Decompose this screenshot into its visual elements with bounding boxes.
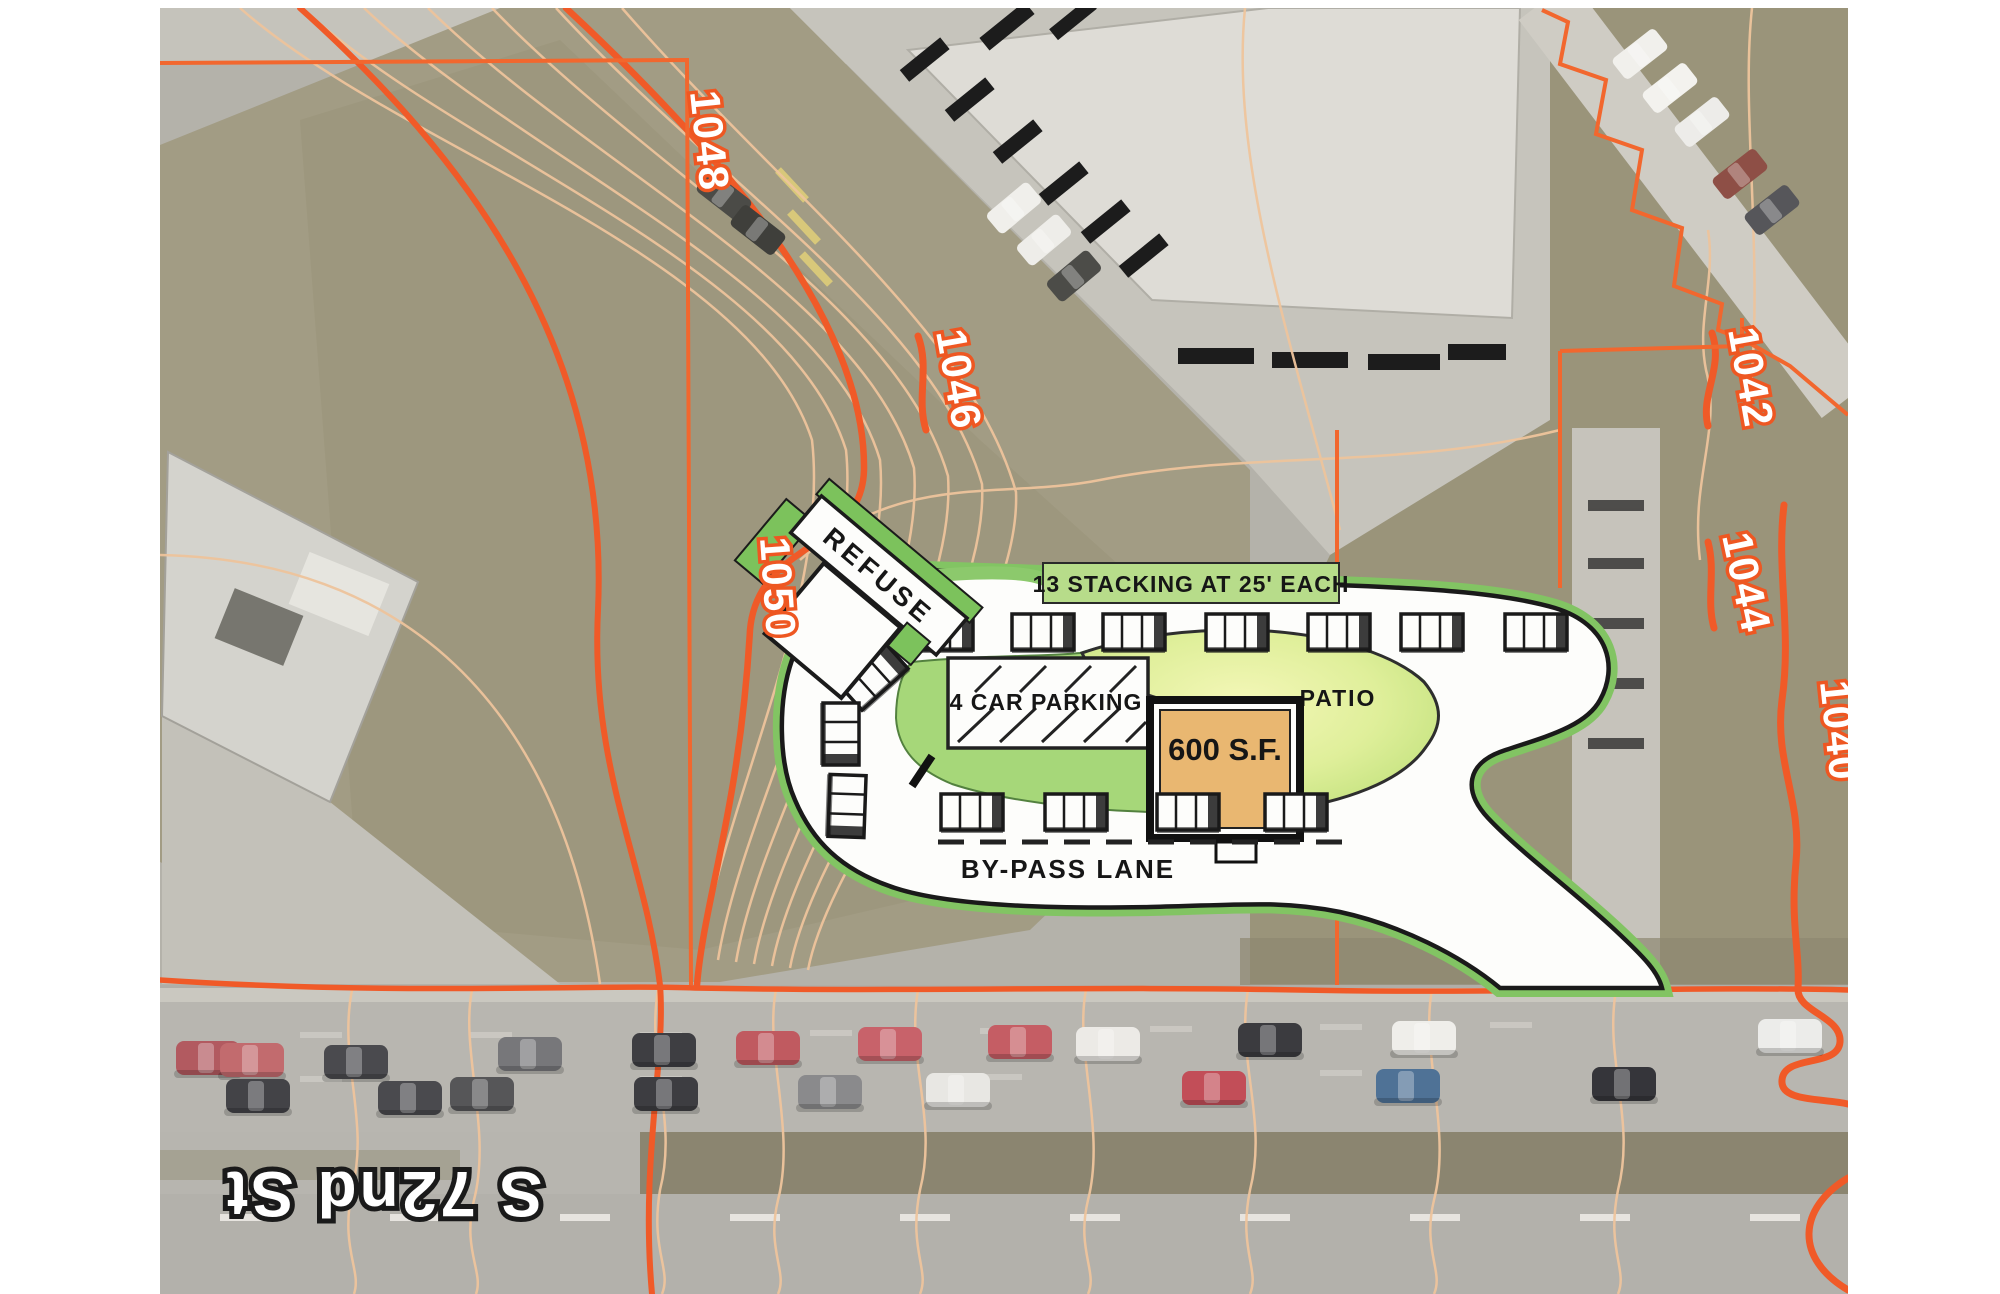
car-white (1074, 1027, 1142, 1064)
plan-car (1103, 614, 1165, 653)
car-red (856, 1027, 924, 1064)
car-white (924, 1073, 992, 1110)
car-dark (630, 1033, 698, 1070)
plan-car (941, 794, 1003, 833)
car-dark (448, 1077, 516, 1114)
plan-car (1012, 614, 1074, 653)
car-red (1180, 1071, 1248, 1108)
plan-car (1045, 794, 1107, 833)
plan-car (825, 774, 866, 837)
plan-car (1308, 614, 1370, 653)
car-red (218, 1043, 286, 1080)
car-red (734, 1031, 802, 1068)
contour-1044-line (1708, 542, 1714, 628)
car-white (1756, 1019, 1824, 1056)
car-dark-suv (1236, 1023, 1304, 1060)
plan-car (1265, 794, 1327, 833)
drive-thru-window (1216, 842, 1256, 862)
car-white (1390, 1021, 1458, 1058)
car-gray (496, 1037, 564, 1074)
car-parking-label: 4 CAR PARKING (950, 689, 1143, 715)
car-dark (376, 1081, 444, 1118)
car-dark (224, 1079, 292, 1116)
bypass-label: BY-PASS LANE (961, 854, 1175, 884)
plan-car (1157, 794, 1219, 833)
car-red (986, 1025, 1054, 1062)
stacking-label: 13 STACKING AT 25' EACH (1033, 571, 1350, 597)
patio-label: PATIO (1300, 685, 1377, 711)
street-name-label: S 72nd St (224, 1158, 543, 1230)
building-area-label: 600 S.F. (1168, 732, 1282, 767)
plan-car (820, 703, 859, 765)
site-plan-map: 13 STACKING AT 25' EACH PATIO 4 CAR PARK… (0, 0, 2000, 1294)
contour-label-1050: 1050 (751, 535, 805, 639)
car-gray (796, 1075, 864, 1112)
building-600sf: 600 S.F. (1146, 696, 1304, 862)
car-dark (1590, 1067, 1658, 1104)
car-blue (1374, 1069, 1442, 1106)
car-dark (322, 1045, 390, 1082)
median (640, 1132, 1848, 1194)
plan-car (1505, 614, 1567, 653)
plan-car (1401, 614, 1463, 653)
scanned-site-plan-page: 13 STACKING AT 25' EACH PATIO 4 CAR PARK… (0, 0, 2000, 1294)
plan-car (1206, 614, 1268, 653)
car-dark (632, 1077, 700, 1114)
